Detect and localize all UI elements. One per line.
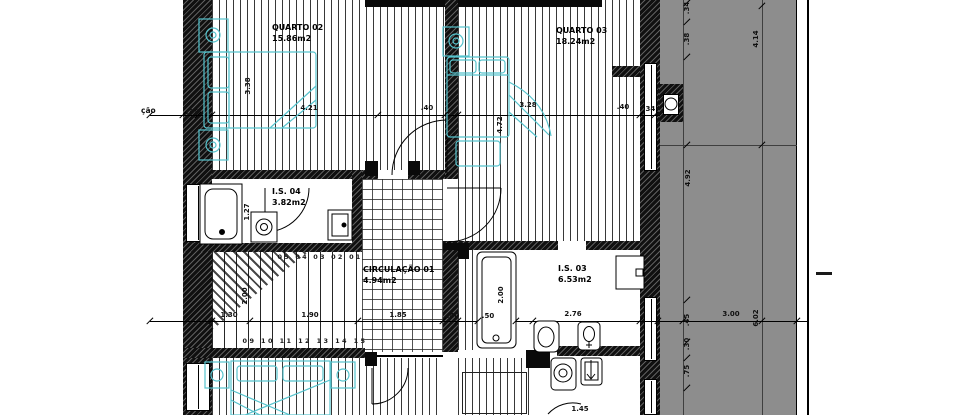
dimension-tick — [374, 111, 381, 118]
dimension-tick — [146, 317, 153, 324]
room-area: 4.94m2 — [363, 276, 397, 285]
dimension-tick — [683, 354, 690, 361]
dimension-label: 1.90 — [301, 311, 318, 319]
room-name: I.S. 03 — [558, 264, 587, 273]
dimension-tick — [208, 317, 215, 324]
room-area: 6.53m2 — [558, 275, 592, 284]
dimension-label: 1.85 — [389, 311, 406, 319]
dimension-label: 1.45 — [571, 405, 588, 413]
dimension-label: .38 — [683, 33, 691, 45]
dimension-tick — [758, 141, 765, 148]
stair-numbers-upper: 05 04 03 02 01 — [277, 253, 362, 261]
dimension-tick — [529, 317, 536, 324]
dimension-label: 2.76 — [564, 310, 581, 318]
left-partial-label: ção — [141, 106, 156, 115]
dimension-label: .34 — [643, 105, 655, 113]
dimension-tick — [441, 111, 448, 118]
dimension-label: .50 — [482, 312, 494, 320]
dimension-label: .75 — [683, 365, 691, 377]
room-area: 15.86m2 — [272, 34, 311, 43]
dimension-label: 6.02 — [752, 309, 760, 326]
dimension-tick — [512, 317, 519, 324]
room-label-quarto-03: QUARTO 03 18.24m2 — [556, 25, 607, 47]
stair-numbers-lower: 09 10 11 12 13 14 15 — [243, 337, 368, 345]
dimension-tick — [683, 384, 690, 391]
dimension-label: 1.27 — [243, 203, 251, 220]
dimension-tick — [683, 53, 690, 60]
room-name: I.S. 04 — [272, 187, 301, 196]
dimension-tick — [636, 317, 643, 324]
dimension-label: .40 — [447, 312, 459, 320]
dimension-tick — [683, 296, 690, 303]
dimension-tick — [454, 111, 461, 118]
dimension-label: 2.00 — [497, 286, 505, 303]
dimension-layer: .354.21.403.28.40.343.384.721.272.002.00… — [0, 0, 960, 415]
room-name: QUARTO 03 — [556, 26, 607, 35]
dimension-label: .30 — [683, 338, 691, 350]
dimension-tick — [654, 317, 661, 324]
dimension-label: 4.14 — [752, 30, 760, 47]
room-name: CIRCULAÇÃO 01 — [363, 265, 434, 274]
dimension-label: 1.30 — [220, 311, 237, 319]
dimension-label: .40 — [421, 104, 433, 112]
room-name: QUARTO 02 — [272, 23, 323, 32]
dimension-label: .45 — [683, 314, 691, 326]
dimension-label: 4.72 — [496, 116, 504, 133]
dimension-label: 3.28 — [519, 101, 536, 109]
floor-plan: .354.21.403.28.40.343.384.721.272.002.00… — [0, 0, 960, 415]
room-area: 18.24m2 — [556, 37, 595, 46]
dimension-tick — [246, 317, 253, 324]
dimension-tick — [354, 317, 361, 324]
dimension-label: 3.38 — [244, 77, 252, 94]
dimension-label: 4.21 — [300, 104, 317, 112]
dimension-tick — [474, 317, 481, 324]
dimension-tick — [683, 18, 690, 25]
dimension-tick — [683, 141, 690, 148]
dimension-label: 4.92 — [684, 169, 692, 186]
dimension-label: .34 — [683, 2, 691, 14]
room-label-is-03: I.S. 03 6.53m2 — [558, 263, 592, 285]
room-area: 3.82m2 — [272, 198, 306, 207]
dimension-label: .35 — [186, 108, 198, 116]
room-label-is-04: I.S. 04 3.82m2 — [272, 186, 306, 208]
dimension-label: 3.00 — [722, 310, 739, 318]
dimension-tick — [758, 2, 765, 9]
dimension-label: 2.00 — [241, 287, 249, 304]
dimension-tick — [439, 317, 446, 324]
dimension-tick — [208, 111, 215, 118]
room-label-circulacao-01: CIRCULAÇÃO 01 4.94m2 — [363, 264, 434, 286]
dimension-tick — [793, 317, 800, 324]
dimension-label: .40 — [617, 103, 629, 111]
room-label-quarto-02: QUARTO 02 15.86m2 — [272, 22, 323, 44]
